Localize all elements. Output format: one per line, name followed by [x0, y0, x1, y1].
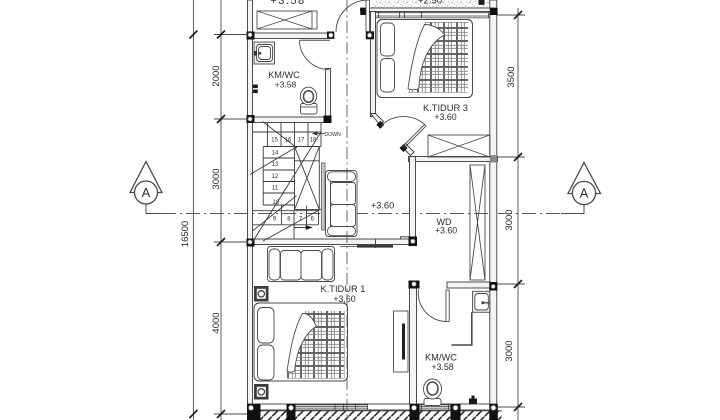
svg-text:3000: 3000 — [504, 209, 515, 230]
svg-text:15: 15 — [271, 137, 278, 143]
svg-text:13: 13 — [272, 162, 279, 168]
svg-text:4000: 4000 — [211, 312, 222, 333]
svg-text:18: 18 — [310, 137, 317, 143]
svg-text:+3.58: +3.58 — [431, 362, 453, 372]
svg-text:11: 11 — [272, 186, 279, 192]
svg-text:16: 16 — [285, 137, 292, 143]
svg-text:+3.58: +3.58 — [275, 80, 297, 90]
svg-text:3000: 3000 — [504, 340, 515, 361]
svg-text:10: 10 — [273, 200, 280, 206]
svg-text:+3.60: +3.60 — [435, 226, 457, 236]
svg-text:K.TIDUR 1: K.TIDUR 1 — [321, 284, 366, 294]
svg-text:12: 12 — [272, 174, 279, 180]
svg-text:17: 17 — [298, 137, 305, 143]
svg-text:2000: 2000 — [211, 65, 222, 86]
svg-text:+2.50: +2.50 — [418, 0, 442, 6]
svg-text:+3,60: +3,60 — [333, 294, 355, 304]
svg-text:A: A — [580, 186, 589, 201]
svg-text:+3.60: +3.60 — [371, 201, 395, 211]
svg-text:KM/WC: KM/WC — [268, 70, 300, 80]
svg-text:KM/WC: KM/WC — [425, 353, 457, 363]
svg-text:14: 14 — [272, 150, 279, 156]
svg-text:+3.58: +3.58 — [270, 0, 305, 7]
svg-text:+3.60: +3.60 — [434, 112, 456, 122]
svg-text:16500: 16500 — [180, 221, 191, 247]
svg-text:3000: 3000 — [211, 168, 222, 189]
svg-text:DOWN: DOWN — [324, 132, 341, 138]
svg-text:A: A — [142, 185, 151, 200]
svg-text:3500: 3500 — [506, 66, 517, 87]
